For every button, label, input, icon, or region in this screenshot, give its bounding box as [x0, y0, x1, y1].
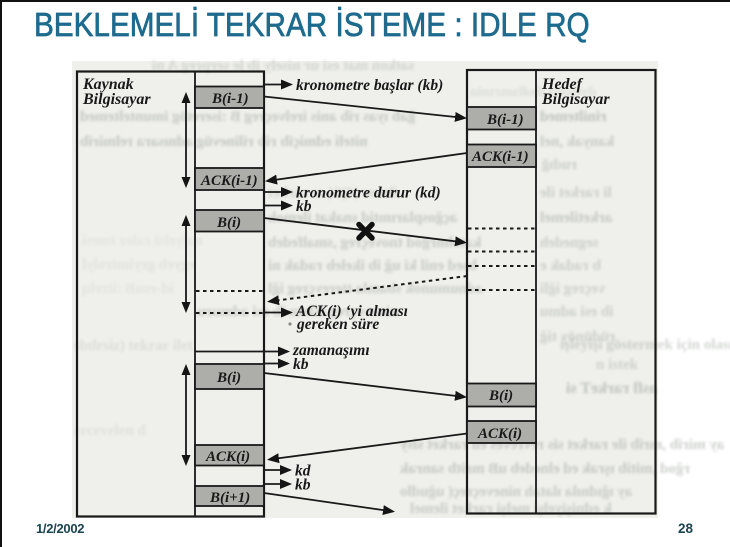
svg-text:B(i): B(i): [216, 215, 241, 231]
svg-text:ACK(i): ACK(i): [477, 426, 522, 442]
svg-text:B(i): B(i): [216, 370, 241, 386]
svg-text:Bilgisayar: Bilgisayar: [541, 91, 610, 108]
svg-text:B(i): B(i): [488, 388, 513, 404]
svg-text:kb: kb: [296, 198, 312, 215]
svg-text:gereken süre: gereken süre: [296, 316, 379, 333]
svg-text:kb: kb: [293, 356, 309, 373]
svg-text:ACK(i): ACK(i): [205, 449, 250, 465]
svg-text:kronometre durur (kd): kronometre durur (kd): [296, 185, 441, 202]
svg-text:kronometre başlar (kb): kronometre başlar (kb): [296, 77, 443, 94]
svg-text:B(i+1): B(i+1): [209, 490, 250, 506]
svg-text:Bilgisayar: Bilgisayar: [82, 91, 151, 108]
svg-text:ACK(i-1): ACK(i-1): [471, 149, 529, 165]
svg-text:kb: kb: [295, 477, 311, 494]
svg-text:B(i-1): B(i-1): [486, 112, 524, 128]
svg-text:B(i-1): B(i-1): [211, 91, 249, 107]
svg-text:ACK(i-1): ACK(i-1): [200, 173, 258, 189]
